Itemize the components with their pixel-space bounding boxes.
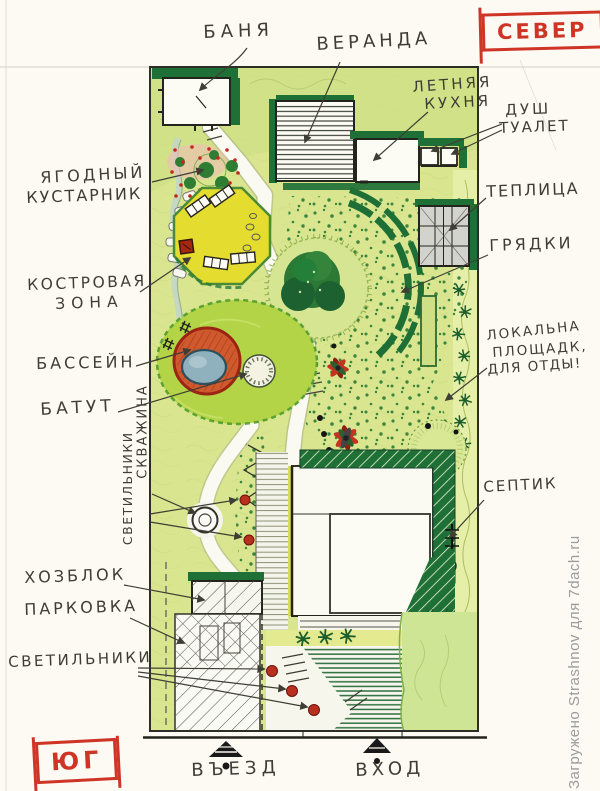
label-berry-line2: КУСТАРНИК: [26, 186, 143, 206]
label-kitchen-line2: КУХНЯ: [424, 94, 491, 112]
label-fire-line2: ЗОНА: [55, 295, 124, 313]
trampoline: [243, 355, 275, 387]
compass-north: СЕВЕР: [482, 10, 600, 51]
shower-toilet-cabins: [418, 138, 467, 168]
label-shower: ДУШ: [505, 101, 551, 118]
greenhouse: [415, 199, 477, 270]
banya-building: [152, 68, 240, 131]
watermark-credit: Загружено Strashnov для 7dach.ru: [566, 535, 583, 789]
front-lawn: [399, 612, 478, 731]
label-lights-vertical: СВЕТИЛЬНИКИ: [122, 423, 135, 553]
label-utility: ХОЗБЛОК: [24, 566, 126, 586]
label-septic: СЕПТИК: [483, 476, 558, 495]
label-driveway: ВЪЕЗД: [191, 759, 281, 780]
compass-frame-bar: [478, 8, 482, 64]
utility-block: [188, 572, 264, 614]
label-beds: ГРЯДКИ: [489, 235, 574, 254]
label-pool: БАССЕЙН: [36, 354, 136, 372]
compass-south-label: ЮГ: [50, 746, 103, 777]
label-entrance: ВХОД: [355, 760, 425, 780]
label-well-vertical: СКВАЖИНА: [137, 377, 150, 487]
label-toilet: ТУАЛЕТ: [499, 119, 570, 136]
label-trampoline: БАТУТ: [40, 398, 115, 419]
compass-south: ЮГ: [35, 738, 119, 784]
compass-north-label: СЕВЕР: [497, 18, 588, 44]
garden-plan-page: БАНЯ ВЕРАНДА ЛЕТНЯЯ КУХНЯ ДУШ ТУАЛЕТ ТЕП…: [0, 0, 600, 791]
label-banya: БАНЯ: [203, 22, 274, 42]
entry-walkway: [266, 626, 402, 731]
label-greenhouse: ТЕПЛИЦА: [486, 181, 580, 200]
label-parking: ПАРКОВКА: [24, 598, 138, 618]
summer-kitchen: [350, 131, 424, 182]
